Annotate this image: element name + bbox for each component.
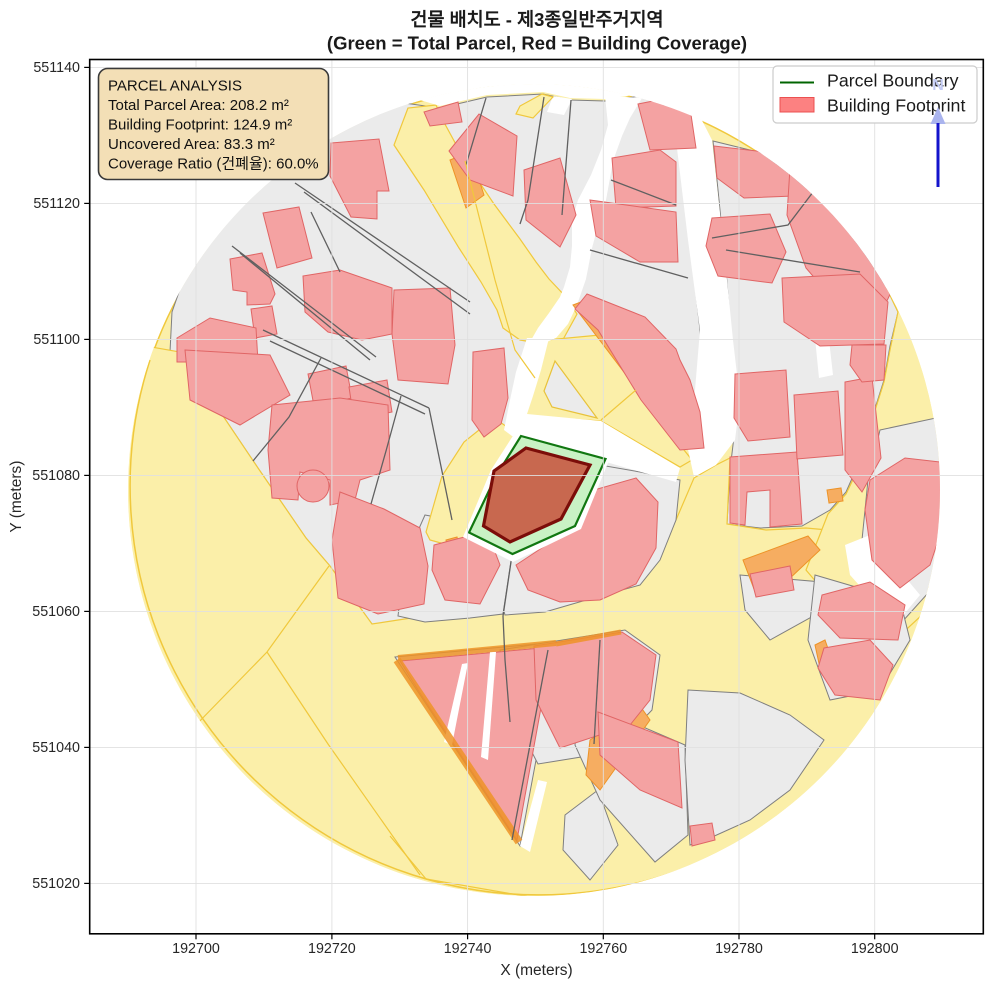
svg-text:551020: 551020 [32,876,80,892]
svg-text:PARCEL ANALYSIS: PARCEL ANALYSIS [108,78,242,95]
svg-text:건물 배치도 - 제3종일반주거지역: 건물 배치도 - 제3종일반주거지역 [410,9,663,30]
svg-text:(Green = Total Parcel, Red = B: (Green = Total Parcel, Red = Building Co… [327,33,747,54]
svg-text:551140: 551140 [33,60,80,76]
svg-text:Building Footprint: 124.9 m²: Building Footprint: 124.9 m² [108,117,292,134]
svg-text:551060: 551060 [32,604,80,620]
svg-text:192720: 192720 [308,941,356,957]
svg-text:551120: 551120 [33,196,80,212]
svg-text:551040: 551040 [32,740,80,756]
svg-text:Coverage Ratio (건폐율): 60.0%: Coverage Ratio (건폐율): 60.0% [108,156,319,173]
svg-text:192800: 192800 [851,941,899,957]
svg-text:551100: 551100 [33,332,80,348]
svg-text:X (meters): X (meters) [500,962,572,979]
svg-text:192740: 192740 [444,941,492,957]
svg-text:Total Parcel Area: 208.2 m²: Total Parcel Area: 208.2 m² [108,97,289,114]
svg-text:192700: 192700 [172,941,220,957]
svg-text:Y (meters): Y (meters) [8,461,25,533]
svg-text:Building Footprint: Building Footprint [827,96,965,116]
svg-text:Uncovered Area: 83.3 m²: Uncovered Area: 83.3 m² [108,136,275,153]
svg-text:N: N [932,77,944,94]
svg-text:551080: 551080 [32,468,80,484]
svg-text:192780: 192780 [715,941,763,957]
svg-text:192760: 192760 [579,941,627,957]
